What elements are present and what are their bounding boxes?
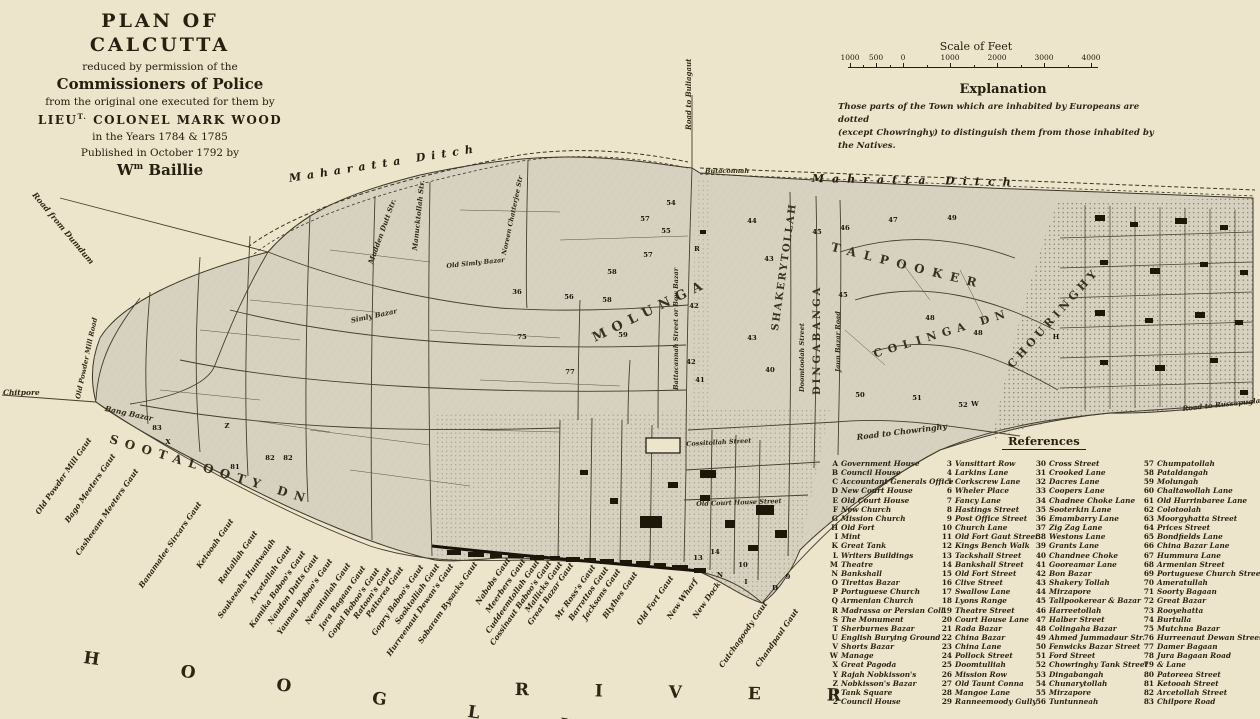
map-page: PLAN OF CALCUTTA reduced by permission o… [0, 0, 1260, 719]
reference-marker: 44 [747, 217, 756, 225]
reference-marker: 43 [764, 255, 773, 263]
street-label: Old Powder Mill Road [74, 317, 99, 400]
reference-marker: 50 [855, 391, 864, 399]
street-label: Doomtoolah Street [798, 323, 806, 392]
reference-marker: 13 [693, 554, 702, 562]
reference-marker: D [772, 584, 778, 592]
reference-marker: 83 [152, 424, 161, 432]
street-label: Bang Bazar [104, 404, 154, 423]
reference-marker: Z [225, 422, 230, 430]
street-label: Mudden Dutt Str. [366, 198, 398, 265]
reference-marker: 82 [283, 454, 292, 462]
reference-marker: R [694, 245, 700, 253]
reference-marker: 57 [643, 251, 652, 259]
street-label: Road to Chowringhy [856, 421, 947, 442]
river-label-river: R I V E R [515, 680, 871, 706]
street-label: Jaun Bazar Road [834, 311, 842, 372]
reference-marker: 58 [607, 268, 616, 276]
reference-marker: 48 [925, 314, 934, 322]
reference-marker: 52 [958, 401, 967, 409]
street-label: Old Court House Street [696, 497, 782, 508]
reference-marker: 43 [747, 334, 756, 342]
reference-marker: 46 [840, 224, 849, 232]
map-label-layer: Maharatta DitchMahratta DitchMOLUNGASHAK… [0, 0, 1260, 719]
reference-marker: 41 [695, 376, 704, 384]
reference-marker: 49 [947, 214, 956, 222]
reference-marker: 75 [517, 333, 526, 341]
reference-marker: 14 [710, 548, 719, 556]
reference-marker: 9 [786, 573, 791, 581]
street-label: Butaconnah [705, 167, 749, 175]
reference-marker: X [165, 438, 170, 446]
reference-marker: 10 [738, 561, 747, 569]
street-label: Simly Bazar [350, 306, 398, 325]
street-label: Battacannah Street or Bow Bazar [672, 268, 680, 390]
region-label: MOLUNGA [590, 276, 711, 345]
region-label: TALPOOKER [830, 240, 986, 292]
reference-marker: N [717, 571, 723, 579]
reference-marker: 36 [512, 288, 521, 296]
street-label: Road to Buliagaut [684, 59, 693, 130]
reference-marker: 42 [686, 358, 695, 366]
reference-marker: 57 [640, 215, 649, 223]
reference-marker: 56 [564, 293, 573, 301]
street-label: Chitpore [3, 388, 40, 397]
reference-marker: W [971, 400, 979, 408]
region-label: Mahratta Ditch [812, 172, 1019, 189]
reference-marker: 59 [618, 331, 627, 339]
reference-marker: 42 [689, 302, 698, 310]
region-label: DINGABANGA [812, 285, 823, 395]
street-label: Road to Russapuglah [1182, 395, 1260, 413]
reference-marker: 77 [565, 368, 574, 376]
street-label: Old Simly Bazar [446, 256, 505, 270]
reference-marker: 54 [666, 199, 675, 207]
street-label: Road from Dumdum [30, 190, 96, 266]
ghat-label: Banamalee Sircars Gaut [137, 500, 204, 590]
reference-marker: H [1053, 333, 1059, 341]
reference-marker: 55 [661, 227, 670, 235]
reference-marker: 51 [912, 394, 921, 402]
region-label: CHOURINGHY [1005, 265, 1102, 371]
reference-marker: 82 [265, 454, 274, 462]
reference-marker: 40 [765, 366, 774, 374]
region-label: Maharatta Ditch [288, 142, 480, 185]
reference-marker: 45 [812, 228, 821, 236]
reference-marker: 81 [230, 463, 239, 471]
region-label: SHAKERYTOLLAH [770, 202, 799, 332]
street-label: Manucktollah Str. [410, 180, 426, 251]
region-label: COLINGA DN [872, 306, 1012, 360]
ghat-label: Casheeam Meeters Gaut [73, 467, 140, 557]
reference-marker: 45 [838, 291, 847, 299]
reference-marker: 47 [888, 216, 897, 224]
street-label: Cossitollah Street [686, 437, 752, 448]
reference-marker: 58 [602, 296, 611, 304]
street-label: Noreen Chatterjee Str [500, 175, 525, 256]
reference-marker: 48 [973, 329, 982, 337]
region-label: SOOTALOOTY DN [108, 432, 313, 507]
reference-marker: I [744, 578, 747, 586]
